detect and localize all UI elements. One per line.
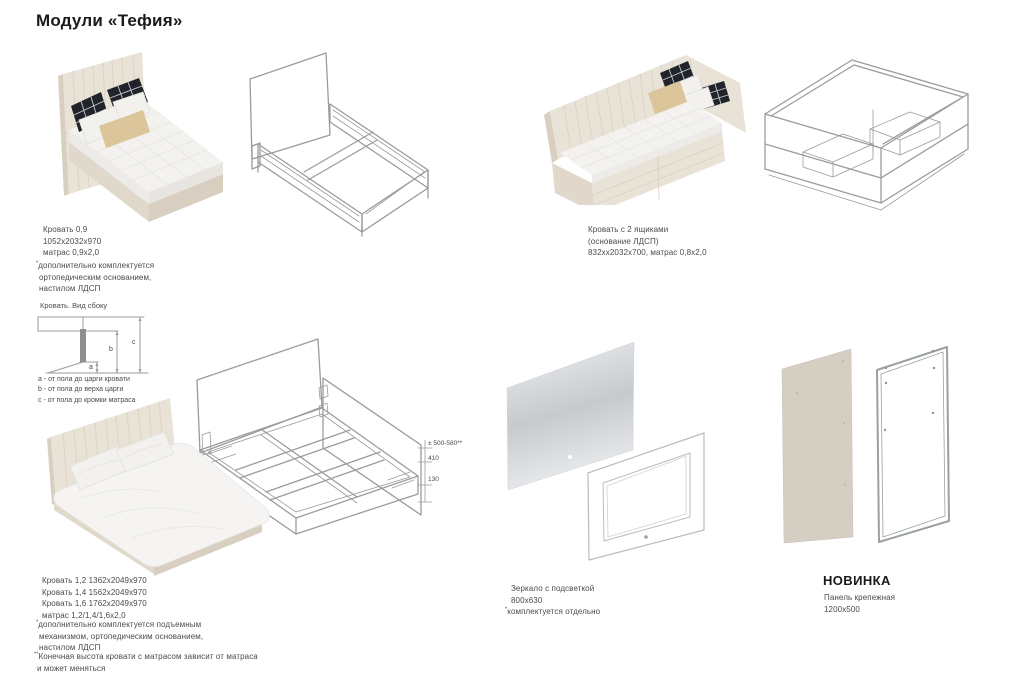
dim-label-height: ± 500-580**	[428, 440, 462, 448]
caption-line: Панель крепежная	[824, 592, 895, 604]
caption-line: Кровать 1,2 1362х2049х970	[42, 575, 147, 587]
wireframe-box	[765, 60, 968, 210]
caption-line: 800х630	[511, 595, 594, 607]
mirror-figure	[500, 338, 710, 573]
dim-letter-a: a	[89, 364, 93, 371]
new-badge: НОВИНКА	[823, 573, 891, 589]
catalog-page: Модули «Тефия»	[0, 0, 1009, 686]
bed-double-footnote-1: *дополнительно комплектуется подъемным м…	[36, 619, 203, 654]
caption-line: Кровать 1,4 1562х2049х970	[42, 587, 147, 599]
legend-line: a - от пола до царги кровати	[38, 375, 136, 385]
caption-line: Зеркало с подсветкой	[511, 583, 594, 595]
footnote-line: **Конечная высота кровати с матрасом зав…	[34, 651, 258, 663]
footnote-line: настилом ЛДСП	[36, 283, 154, 295]
caption-line: Кровать с 2 ящиками	[588, 224, 707, 236]
bed-double-footnote-2: **Конечная высота кровати с матрасом зав…	[34, 651, 258, 674]
caption-line: Кровать 0,9	[43, 224, 101, 236]
mirror-caption: Зеркало с подсветкой 800х630	[511, 583, 594, 606]
panel-solid	[782, 349, 853, 543]
wireframe-drawers	[803, 112, 940, 177]
bed-single-render	[55, 48, 240, 223]
footnote-line: *дополнительно комплектуется	[36, 260, 154, 272]
wireframe-frame	[250, 53, 428, 236]
caption-line: матрас 0,9х2,0	[43, 247, 101, 259]
caption-line: 832хх2032х700, матрас 0,8х2,0	[588, 247, 707, 259]
bed-single-footnote: *дополнительно комплектуется ортопедичес…	[36, 260, 154, 295]
footnote-line: ортопедическим основанием,	[36, 272, 154, 284]
caption-line: 1200х500	[824, 604, 895, 616]
mounting-panel-figure	[775, 335, 960, 550]
mirror-touch-sensor	[568, 455, 572, 459]
footnote-line: *дополнительно комплектуется подъемным	[36, 619, 203, 631]
bed-double-caption: Кровать 1,2 1362х2049х970 Кровать 1,4 15…	[42, 575, 147, 621]
footnote-line: и может меняться	[34, 663, 258, 675]
bed-drawers-render	[520, 45, 765, 205]
caption-line: Кровать 1,6 1762х2049х970	[42, 598, 147, 610]
page-title: Модули «Тефия»	[36, 10, 182, 32]
frame-sensor-dot	[644, 535, 648, 539]
bed-drawers-wireframe	[755, 52, 990, 217]
dim-label-130: 130	[428, 476, 439, 484]
mirror-footnote: *комплектуется отдельно	[505, 606, 600, 618]
bed-double-render	[42, 388, 277, 578]
bed-single-caption: Кровать 0,9 1052х2032х970 матрас 0,9х2,0	[43, 224, 101, 259]
panel-caption: Панель крепежная 1200х500	[824, 592, 895, 615]
dim-letter-c: c	[132, 339, 136, 346]
footnote-line: *комплектуется отдельно	[505, 606, 600, 618]
footnote-line: механизмом, ортопедическим основанием,	[36, 631, 203, 643]
side-view-tsarga-bar	[80, 329, 86, 362]
bed-drawers-caption: Кровать с 2 ящиками (основание ЛДСП) 832…	[588, 224, 707, 259]
caption-line: 1052х2032х970	[43, 236, 101, 248]
dim-letter-b: b	[109, 346, 113, 353]
bed-single-wireframe	[240, 48, 440, 238]
dim-label-410: 410	[428, 455, 439, 463]
panel-wireframe	[877, 347, 949, 542]
caption-line: (основание ЛДСП)	[588, 236, 707, 248]
